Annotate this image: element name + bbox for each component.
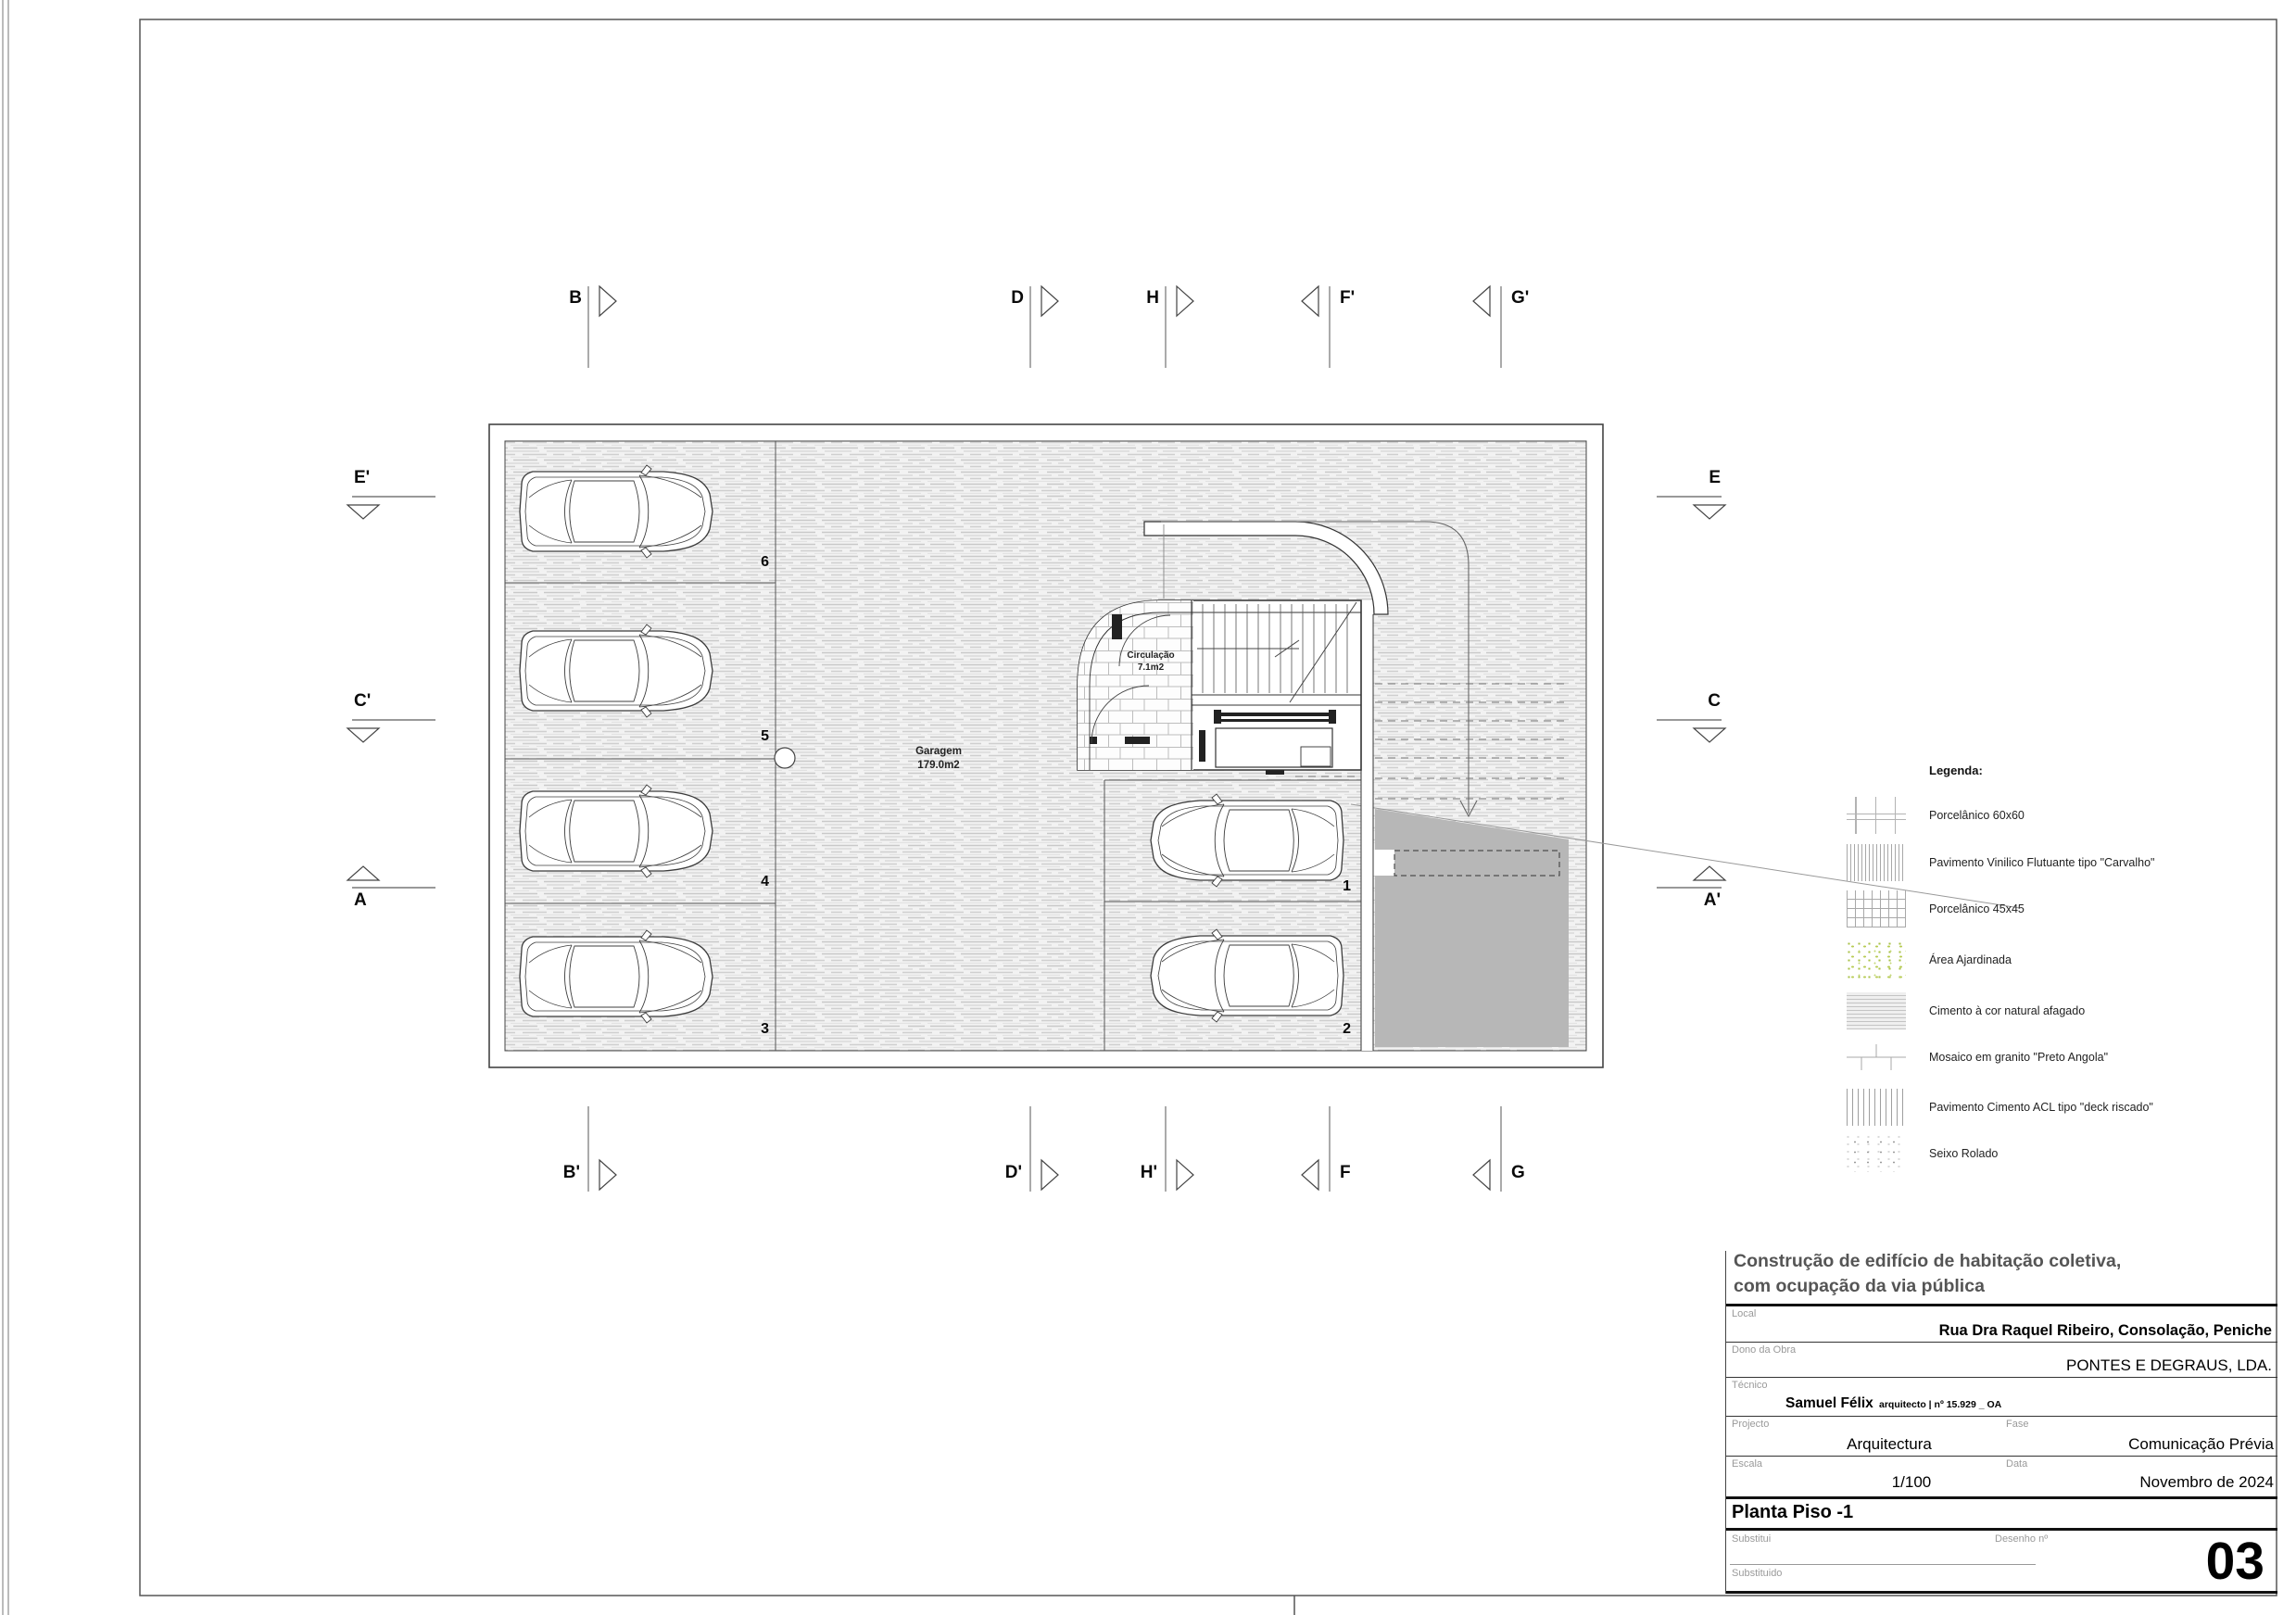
legend-row: Mosaico em granito "Preto Angola" bbox=[1847, 1037, 2260, 1078]
legend-item-label: Pavimento Cimento ACL tipo "deck riscado… bbox=[1929, 1101, 2153, 1114]
drawing-sheet: B D H F' G' B' D' H' F G E' C' A E C A' … bbox=[0, 0, 2296, 1615]
circulation-area: 7.1m2 bbox=[1101, 662, 1201, 674]
title-block-row-scale-date: Escala 1/100 Data Novembro de 2024 bbox=[1726, 1457, 2277, 1496]
replaced-label: Substituido bbox=[1732, 1568, 1782, 1579]
section-marker-a2: A' bbox=[1674, 891, 1721, 910]
legend-item-label: Área Ajardinada bbox=[1929, 953, 2012, 966]
elevator bbox=[1199, 710, 1336, 775]
drawing-number-value: 03 bbox=[2206, 1534, 2264, 1588]
stair-core bbox=[1078, 600, 1361, 775]
drawing-title: Planta Piso -1 bbox=[1732, 1502, 1853, 1523]
title-block: Construção de edifício de habitação cole… bbox=[1725, 1251, 2277, 1594]
legend-swatch-cimento bbox=[1847, 992, 1906, 1029]
corridor-wall bbox=[1361, 600, 1373, 1051]
stall-number-5: 5 bbox=[747, 729, 769, 744]
legend-item-label: Cimento à cor natural afagado bbox=[1929, 1004, 2085, 1017]
legend-row: Seixo Rolado bbox=[1847, 1133, 2260, 1174]
section-marker-f: F bbox=[1340, 1164, 1351, 1182]
owner-label: Dono da Obra bbox=[1732, 1344, 1796, 1356]
garage-name: Garagem bbox=[883, 745, 994, 759]
section-marker-e2: E' bbox=[354, 469, 370, 487]
legend-row: Pavimento Cimento ACL tipo "deck riscado… bbox=[1847, 1087, 2260, 1128]
scale-value: 1/100 bbox=[1726, 1473, 2097, 1492]
technician-label: Técnico bbox=[1732, 1380, 1768, 1391]
section-marker-b: B bbox=[552, 289, 582, 308]
phase-label: Fase bbox=[2006, 1419, 2028, 1430]
legend-swatch-mosaico bbox=[1847, 1039, 1906, 1076]
stall-number-1: 1 bbox=[1329, 879, 1351, 894]
circulation-name: Circulação bbox=[1101, 650, 1201, 662]
title-block-row-owner: Dono da Obra PONTES E DEGRAUS, LDA. bbox=[1726, 1343, 2277, 1378]
legend-swatch-porcelanico-60x60 bbox=[1847, 797, 1906, 834]
local-label: Local bbox=[1732, 1308, 1756, 1319]
legend-swatch-porcelanico-45x45 bbox=[1847, 890, 1906, 927]
legend-swatch-area-ajardinada bbox=[1847, 941, 1906, 978]
legend-swatch-seixo-rolado bbox=[1847, 1135, 1906, 1172]
section-marker-b2: B' bbox=[545, 1164, 580, 1182]
stall-number-3: 3 bbox=[747, 1022, 769, 1037]
legend-item-label: Porcelânico 45x45 bbox=[1929, 902, 2025, 915]
drawing-number-label: Desenho nº bbox=[1995, 1533, 2048, 1545]
section-marker-d2: D' bbox=[987, 1164, 1022, 1182]
local-value: Rua Dra Raquel Ribeiro, Consolação, Peni… bbox=[1939, 1322, 2272, 1340]
legend-row: Cimento à cor natural afagado bbox=[1847, 990, 2260, 1031]
replaces-label: Substitui bbox=[1732, 1533, 1771, 1545]
stall-number-6: 6 bbox=[747, 555, 769, 570]
project-label: Projecto bbox=[1732, 1419, 1769, 1430]
legend-title: Legenda: bbox=[1929, 763, 1983, 777]
legend-item-label: Seixo Rolado bbox=[1929, 1147, 1998, 1160]
circulation-tiles bbox=[1078, 600, 1193, 770]
structural-column bbox=[775, 748, 795, 768]
date-label: Data bbox=[2006, 1458, 2027, 1470]
phase-value: Comunicação Prévia bbox=[2128, 1435, 2274, 1454]
legend-swatch-deck-riscado bbox=[1847, 1089, 1906, 1126]
legend-row: Porcelânico 60x60 bbox=[1847, 795, 2260, 836]
section-marker-e: E bbox=[1674, 469, 1721, 487]
project-value: Arquitectura bbox=[1726, 1435, 2052, 1454]
section-marker-a: A bbox=[354, 891, 367, 910]
owner-value: PONTES E DEGRAUS, LDA. bbox=[2066, 1356, 2272, 1375]
technician-name: Samuel Félix bbox=[1785, 1395, 1873, 1412]
section-marker-c: C bbox=[1674, 692, 1721, 711]
section-marker-h2: H' bbox=[1122, 1164, 1157, 1182]
section-marker-g: G bbox=[1511, 1164, 1525, 1182]
legend-row: Pavimento Vinilico Flutuante tipo "Carva… bbox=[1847, 842, 2260, 883]
legend-item-label: Pavimento Vinilico Flutuante tipo "Carva… bbox=[1929, 856, 2155, 869]
section-marker-g2: G' bbox=[1511, 289, 1529, 308]
legend-row: Porcelânico 45x45 bbox=[1847, 889, 2260, 929]
technician-credentials: arquitecto | nº 15.929 _ OA bbox=[1879, 1399, 2001, 1410]
title-block-row-technician: Técnico Samuel Félix arquitecto | nº 15.… bbox=[1726, 1378, 2277, 1417]
garage-label: Garagem 179.0m2 bbox=[883, 745, 994, 773]
legend-item-label: Porcelânico 60x60 bbox=[1929, 809, 2025, 822]
replaces-divider bbox=[1730, 1564, 2036, 1565]
scale-label: Escala bbox=[1732, 1458, 1762, 1470]
stall-number-4: 4 bbox=[747, 875, 769, 890]
garage-area: 179.0m2 bbox=[883, 759, 994, 773]
project-title-line2: com ocupação da via pública bbox=[1734, 1276, 1985, 1297]
date-value: Novembro de 2024 bbox=[2139, 1473, 2274, 1492]
section-marker-f2: F' bbox=[1340, 289, 1355, 308]
legend-item-label: Mosaico em granito "Preto Angola" bbox=[1929, 1051, 2108, 1064]
legend-swatch-vinilico bbox=[1847, 844, 1906, 881]
stall-number-2: 2 bbox=[1329, 1022, 1351, 1037]
legend-row: Área Ajardinada bbox=[1847, 940, 2260, 980]
section-marker-c2: C' bbox=[354, 692, 371, 711]
title-block-row-project-phase: Projecto Arquitectura Fase Comunicação P… bbox=[1726, 1417, 2277, 1457]
circulation-label: Circulação 7.1m2 bbox=[1101, 650, 1201, 674]
title-block-row-local: Local Rua Dra Raquel Ribeiro, Consolação… bbox=[1726, 1306, 2277, 1343]
section-marker-h: H bbox=[1129, 289, 1159, 308]
project-title-line1: Construção de edifício de habitação cole… bbox=[1734, 1251, 2121, 1272]
section-marker-d: D bbox=[994, 289, 1024, 308]
